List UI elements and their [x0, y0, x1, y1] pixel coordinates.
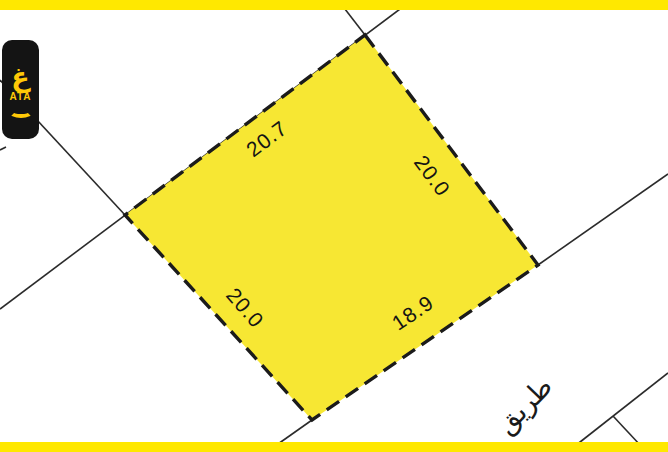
grnata-logo: غ ATA	[2, 40, 39, 139]
top-brand-bar	[0, 0, 668, 10]
boundary-line-bottom-right	[575, 373, 668, 446]
logo-arabic-calligraphy-icon: غ	[11, 63, 29, 90]
logo-wordmark: ATA	[9, 92, 31, 102]
logo-crescent-icon	[9, 106, 33, 118]
bottom-brand-bar	[0, 442, 668, 452]
plot-map: 20.7 20.0 20.0 18.9 طريق غ ATA	[0, 0, 668, 452]
parcel-geometry	[0, 0, 668, 452]
boundary-line-right-vertex	[538, 174, 668, 265]
boundary-line-bottom-vertex	[278, 420, 312, 444]
boundary-tick-left-edge	[0, 147, 6, 150]
plot-polygon	[125, 35, 538, 420]
